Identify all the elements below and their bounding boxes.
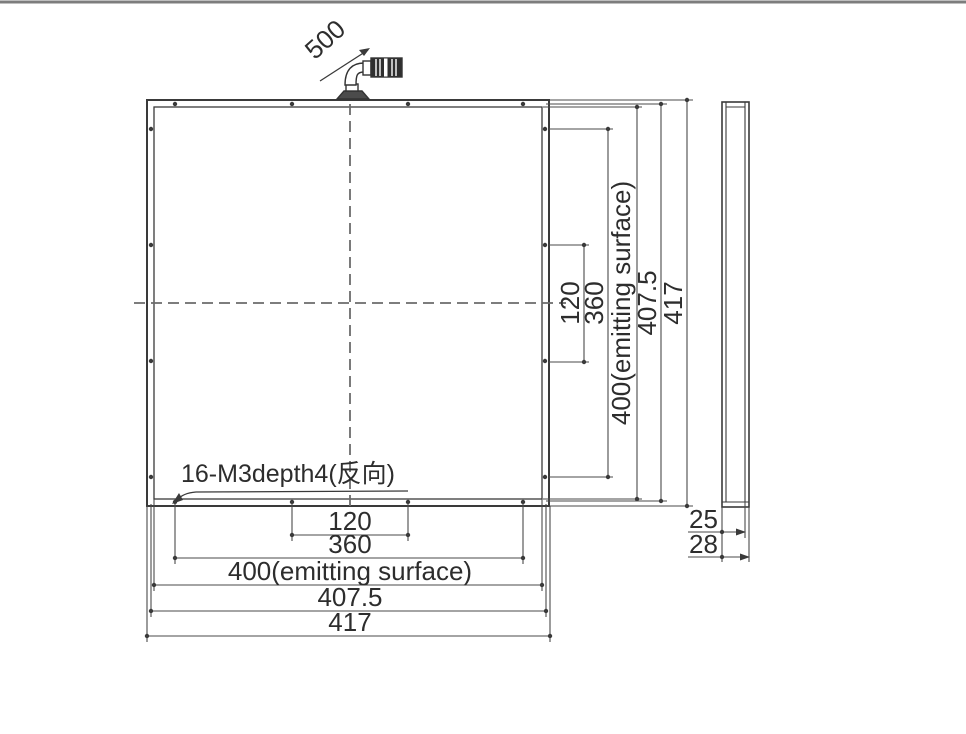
- hole: [149, 359, 153, 363]
- dim-label-h-417: 417: [328, 607, 371, 637]
- side-view: [722, 102, 749, 507]
- dim-label-v-417: 417: [658, 281, 688, 324]
- dim-label-cable-length: 500: [299, 14, 351, 65]
- side-thickness-dimensions: 25 28: [688, 502, 750, 562]
- side-dim-labels: 25 28: [689, 504, 718, 559]
- dim-label-h-360: 360: [328, 529, 371, 559]
- right-dimensions: 120 360 400(emitting surface) 407.5 417: [543, 98, 693, 508]
- connector-elbow: [345, 63, 364, 85]
- hole: [290, 102, 294, 106]
- hole: [149, 127, 153, 131]
- connector-flange: [337, 91, 369, 99]
- right-dim-labels: 120 360 400(emitting surface) 407.5 417: [555, 181, 688, 425]
- hole: [543, 359, 547, 363]
- front-view: [134, 100, 566, 514]
- hole: [406, 102, 410, 106]
- panel-light-drawing: 500 16-M3depth4(反向): [0, 0, 966, 734]
- hole: [149, 243, 153, 247]
- bottom-dimensions: 120 360 400(emitting surface) 407.5 417: [145, 499, 552, 642]
- connector-collar: [363, 61, 371, 75]
- hole: [149, 475, 153, 479]
- hole: [521, 102, 525, 106]
- bottom-dim-labels: 120 360 400(emitting surface) 407.5 417: [228, 506, 472, 637]
- hole: [173, 102, 177, 106]
- mounting-note-text: 16-M3depth4(反向): [181, 460, 395, 488]
- technical-drawing-page: 500 16-M3depth4(反向): [0, 0, 966, 734]
- dim-label-v-360: 360: [579, 281, 609, 324]
- hole: [543, 127, 547, 131]
- hole: [543, 243, 547, 247]
- mounting-note-group: 16-M3depth4(反向): [172, 460, 408, 504]
- dim-label-28: 28: [689, 529, 718, 559]
- hole: [543, 475, 547, 479]
